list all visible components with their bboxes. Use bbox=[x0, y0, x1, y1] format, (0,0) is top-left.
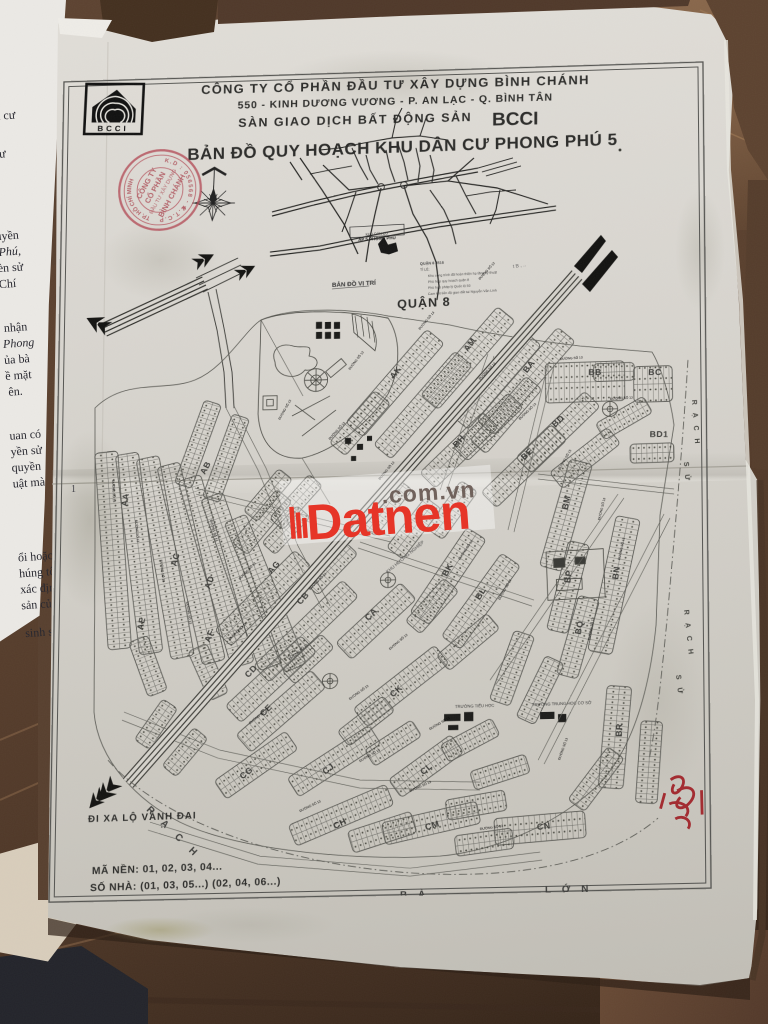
svg-text:1: 1 bbox=[71, 484, 76, 495]
